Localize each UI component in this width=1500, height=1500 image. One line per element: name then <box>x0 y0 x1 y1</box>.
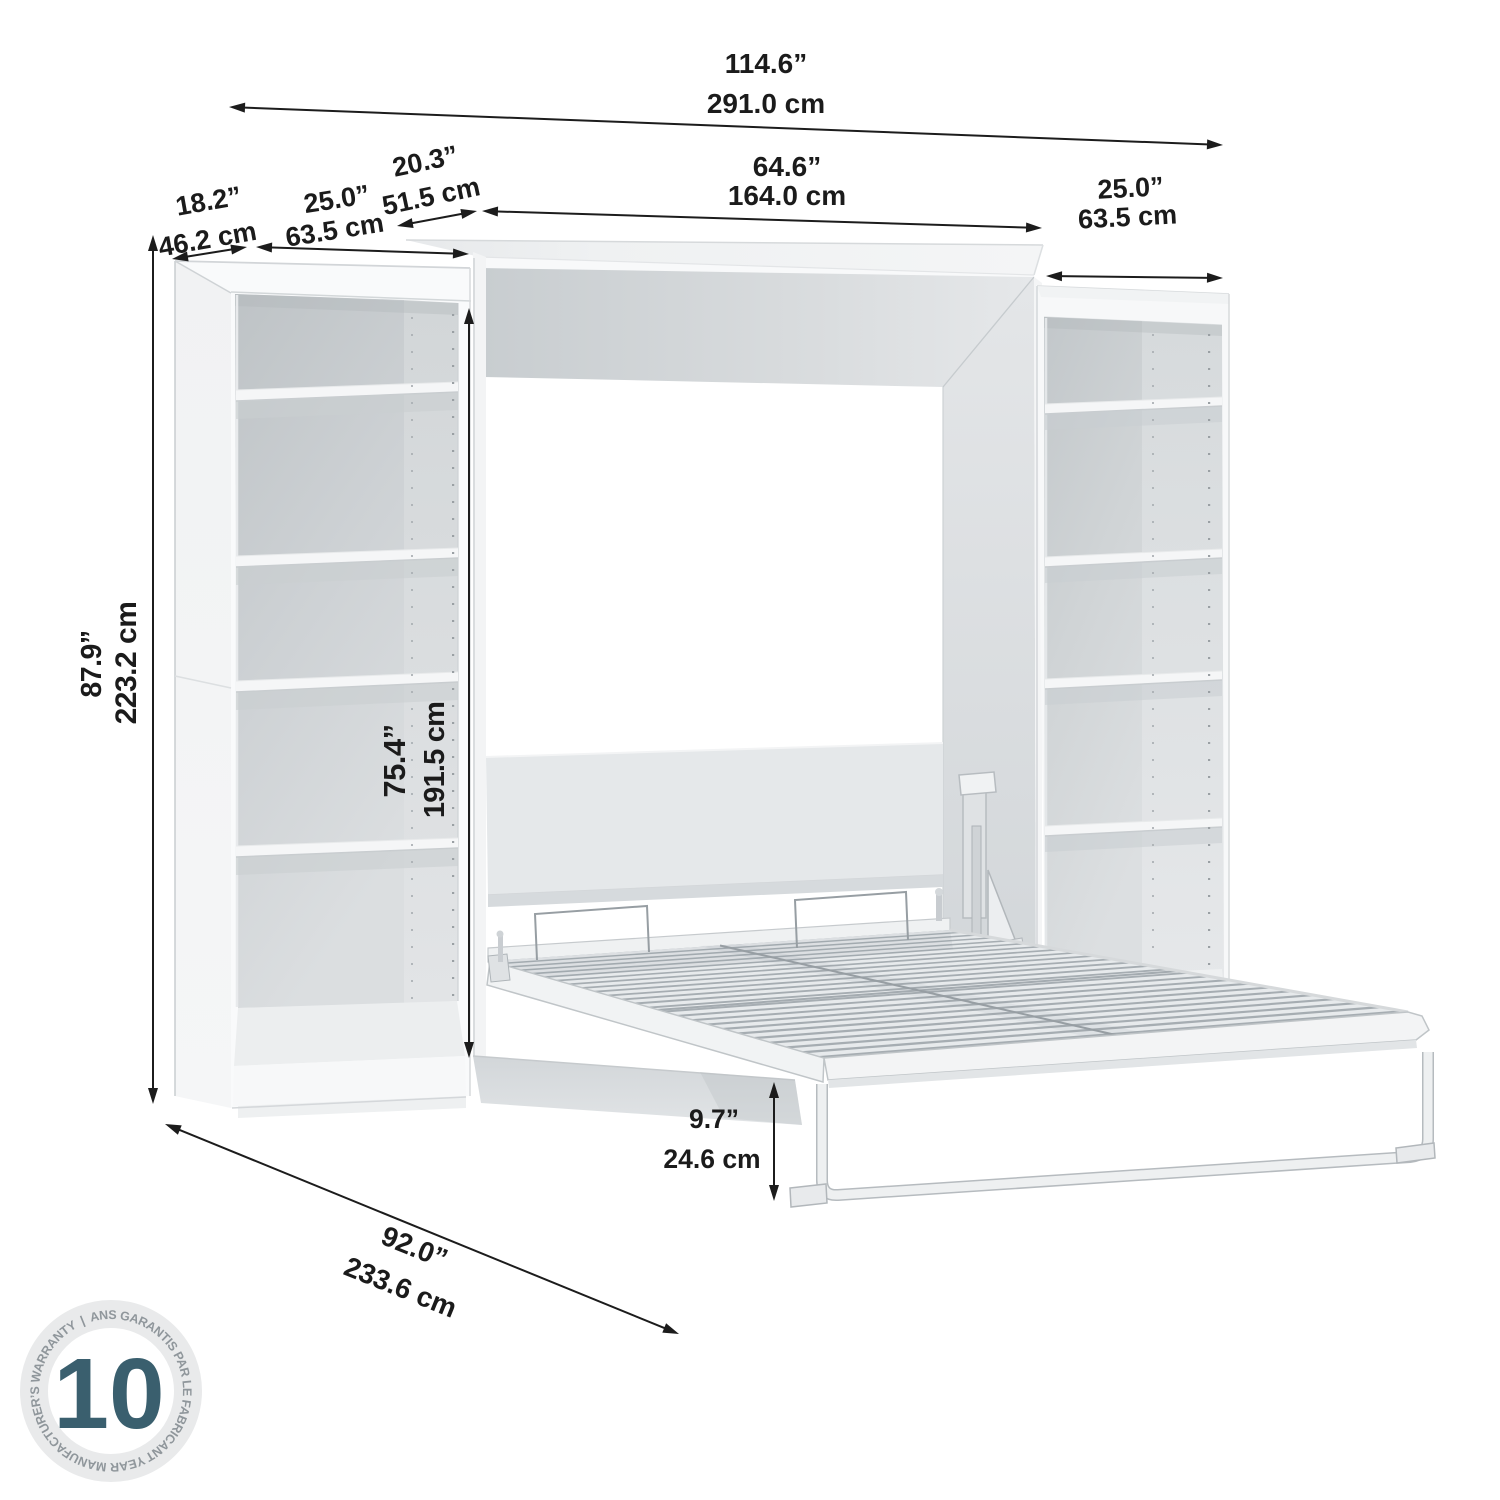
svg-text:64.6”: 64.6” <box>753 151 822 182</box>
svg-text:291.0 cm: 291.0 cm <box>707 88 825 119</box>
svg-text:9.7”: 9.7” <box>689 1104 739 1134</box>
svg-text:87.9”: 87.9” <box>76 630 108 697</box>
svg-text:75.4”: 75.4” <box>377 724 412 797</box>
svg-text:164.0 cm: 164.0 cm <box>728 180 846 211</box>
svg-text:24.6 cm: 24.6 cm <box>663 1144 760 1174</box>
svg-text:63.5 cm: 63.5 cm <box>1077 199 1178 234</box>
svg-text:10: 10 <box>53 1338 164 1450</box>
svg-text:223.2 cm: 223.2 cm <box>110 602 143 725</box>
svg-text:114.6”: 114.6” <box>725 48 808 79</box>
svg-text:191.5 cm: 191.5 cm <box>419 702 451 818</box>
